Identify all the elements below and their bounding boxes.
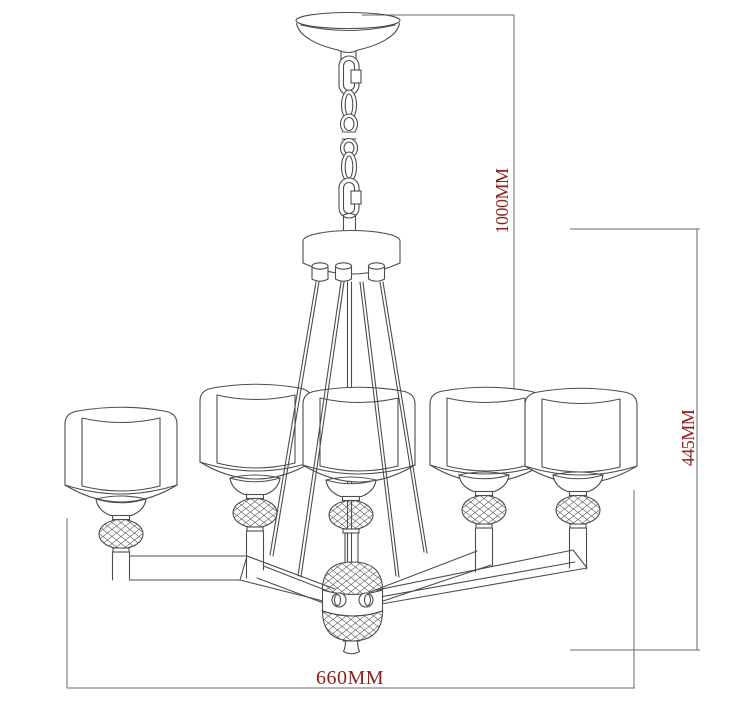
dimension-label-445mm: 445MM xyxy=(678,409,698,466)
drum-shade-5 xyxy=(525,388,637,483)
lamp-base-2 xyxy=(230,475,280,578)
lamp-base-4 xyxy=(459,472,509,572)
dimension-overall-drop-1000mm: 1000MM xyxy=(362,15,514,389)
dimension-label-660mm: 660MM xyxy=(316,667,384,689)
lamp-base-1 xyxy=(96,496,146,580)
quick-link-nut xyxy=(351,191,361,204)
suspension-chain xyxy=(336,56,362,231)
chandelier-technical-drawing: 1000MM 445MM 660MM xyxy=(0,0,740,720)
drum-shade-2 xyxy=(200,384,312,479)
ceiling-canopy xyxy=(296,13,400,61)
dimension-label-1000mm: 1000MM xyxy=(492,168,512,234)
central-crystal-body xyxy=(323,562,383,654)
bottom-finial xyxy=(343,641,360,654)
hub-sockets xyxy=(312,263,385,281)
quick-link-nut xyxy=(351,70,361,83)
lamp-base-5 xyxy=(553,472,603,569)
drawing-canvas: 1000MM 445MM 660MM xyxy=(0,0,740,720)
central-hub xyxy=(303,231,400,282)
drum-shade-3 xyxy=(303,387,415,482)
drum-shade-1 xyxy=(65,407,177,502)
